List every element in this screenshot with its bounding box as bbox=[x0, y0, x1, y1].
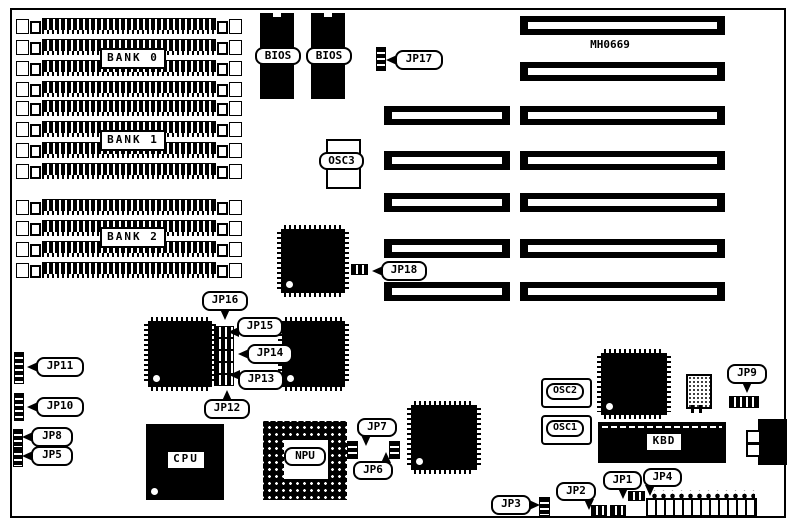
board-model-text: MH0669 bbox=[570, 38, 650, 51]
jp3-label: JP3 bbox=[493, 497, 529, 511]
jp6-label: JP6 bbox=[355, 463, 391, 477]
simm-latch bbox=[30, 63, 41, 76]
chip-pins bbox=[277, 232, 281, 290]
simm-latch bbox=[30, 166, 41, 179]
jumper-jp18 bbox=[351, 264, 368, 275]
callout-tail bbox=[361, 435, 371, 446]
simm-ticks bbox=[42, 154, 216, 158]
simm-clip bbox=[16, 143, 29, 158]
isa-slot-short bbox=[384, 282, 510, 301]
simm-clip bbox=[16, 101, 29, 116]
callout-jp11: JP11 bbox=[36, 357, 84, 377]
callout-tail bbox=[222, 390, 232, 401]
simm-ticks bbox=[42, 93, 216, 97]
motherboard-diagram: BANK 0 BANK 1 BANK 2 BIOS BIOS JP17 OSC3… bbox=[0, 0, 791, 527]
callout-tail bbox=[618, 488, 628, 499]
isa-slot-short bbox=[384, 151, 510, 170]
callout-jp14: JP14 bbox=[247, 344, 293, 364]
simm-latch bbox=[30, 103, 41, 116]
simm-latch bbox=[217, 223, 228, 236]
chip-pins bbox=[345, 324, 349, 384]
simm-latch bbox=[30, 124, 41, 137]
simm-clip bbox=[229, 200, 242, 215]
chip-pins bbox=[285, 387, 342, 391]
simm-latch bbox=[217, 63, 228, 76]
jp2-label: JP2 bbox=[558, 484, 594, 498]
simm-clip bbox=[16, 122, 29, 137]
simm-ticks bbox=[42, 112, 216, 116]
callout-tail bbox=[220, 309, 230, 320]
jumper-jp11 bbox=[14, 352, 24, 384]
simm-latch bbox=[30, 84, 41, 97]
simm-clip bbox=[16, 40, 29, 55]
pin1-dot bbox=[606, 403, 613, 410]
simm-clip bbox=[229, 221, 242, 236]
kbd-label: KBD bbox=[646, 433, 682, 451]
simm-ticks bbox=[42, 175, 216, 179]
simm-clip bbox=[229, 40, 242, 55]
callout-jp12: JP12 bbox=[204, 399, 250, 419]
callout-jp6: JP6 bbox=[353, 461, 393, 480]
chip-pins bbox=[604, 415, 664, 419]
callout-tail bbox=[27, 402, 38, 412]
simm-latch bbox=[217, 202, 228, 215]
simm-clip bbox=[16, 221, 29, 236]
jumper-jp3 bbox=[539, 497, 550, 516]
simm-clip bbox=[16, 200, 29, 215]
isa-slot-long bbox=[520, 193, 725, 212]
simm-latch bbox=[217, 124, 228, 137]
simm-latch bbox=[30, 244, 41, 257]
chip-pins bbox=[284, 225, 342, 229]
callout-jp13: JP13 bbox=[238, 370, 284, 390]
jp16-label: JP16 bbox=[204, 293, 246, 307]
jumper-jp6 bbox=[389, 441, 400, 459]
jp14-label: JP14 bbox=[249, 346, 291, 360]
jp18-label: JP18 bbox=[383, 263, 425, 277]
simm-ticks bbox=[42, 211, 216, 215]
isa-slot-short bbox=[384, 106, 510, 125]
chip-pins bbox=[345, 232, 349, 290]
bank2-label: BANK 2 bbox=[100, 227, 166, 248]
jp5-label: JP5 bbox=[33, 448, 71, 462]
callout-jp17: JP17 bbox=[395, 50, 443, 70]
simm-latch bbox=[30, 21, 41, 34]
keyboard-din-connector bbox=[758, 419, 787, 465]
chip-pins bbox=[604, 349, 664, 353]
callout-jp18: JP18 bbox=[381, 261, 427, 281]
jp7-label: JP7 bbox=[359, 420, 395, 434]
jp17-label: JP17 bbox=[397, 52, 441, 66]
chip-pins bbox=[151, 317, 209, 321]
callout-tail bbox=[584, 499, 594, 510]
simm-clip bbox=[16, 82, 29, 97]
callout-tail bbox=[372, 266, 383, 276]
jp9-label: JP9 bbox=[729, 366, 765, 380]
simm-clip bbox=[229, 122, 242, 137]
isa-slot-long bbox=[520, 16, 725, 35]
callout-tail bbox=[238, 349, 249, 359]
isa-slot-long bbox=[520, 106, 725, 125]
callout-jp10: JP10 bbox=[36, 397, 84, 417]
jp13-label: JP13 bbox=[240, 372, 282, 386]
simm-socket bbox=[16, 81, 242, 98]
callout-tail bbox=[229, 370, 240, 380]
simm-socket bbox=[16, 163, 242, 180]
simm-latch bbox=[30, 202, 41, 215]
callout-tail bbox=[381, 452, 391, 463]
simm-clip bbox=[229, 143, 242, 158]
chipset-chip-1 bbox=[281, 229, 345, 293]
callout-jp16: JP16 bbox=[202, 291, 248, 311]
chip-pins bbox=[284, 293, 342, 297]
bank1-label: BANK 1 bbox=[100, 130, 166, 151]
isa-slot-short bbox=[384, 239, 510, 258]
isa-slot-long bbox=[520, 282, 725, 301]
simm-latch bbox=[30, 42, 41, 55]
simm-latch bbox=[217, 103, 228, 116]
callout-jp2: JP2 bbox=[556, 482, 596, 501]
simm-clip bbox=[16, 61, 29, 76]
bottom-header-connector bbox=[646, 490, 757, 517]
callout-tail bbox=[742, 382, 752, 393]
pin1-dot bbox=[151, 488, 158, 495]
jp15-label: JP15 bbox=[239, 319, 281, 333]
simm-socket bbox=[16, 100, 242, 117]
chip-pins bbox=[151, 387, 209, 391]
simm-latch bbox=[30, 265, 41, 278]
simm-latch bbox=[217, 42, 228, 55]
callout-tail bbox=[22, 451, 33, 461]
chipset-chip-4 bbox=[411, 405, 477, 470]
pin1-dot bbox=[286, 281, 293, 288]
chipset-chip-5 bbox=[601, 353, 667, 415]
simm-latch bbox=[217, 244, 228, 257]
jumper-jp14 bbox=[214, 350, 234, 362]
jumper-jp4 bbox=[628, 491, 645, 501]
chip-pins bbox=[285, 317, 342, 321]
chip-pins bbox=[597, 356, 601, 412]
simm-clip bbox=[229, 242, 242, 257]
chip-pins bbox=[144, 324, 148, 384]
simm-socket bbox=[16, 262, 242, 279]
simm-latch bbox=[217, 166, 228, 179]
simm-socket bbox=[16, 199, 242, 216]
simm-clip bbox=[16, 242, 29, 257]
bios-left-label: BIOS bbox=[255, 47, 301, 65]
jp10-label: JP10 bbox=[38, 399, 82, 413]
crystal-leg bbox=[691, 405, 694, 413]
callout-jp9: JP9 bbox=[727, 364, 767, 384]
chip-pins bbox=[414, 401, 474, 405]
din-pin bbox=[746, 430, 761, 444]
isa-slot-long bbox=[520, 239, 725, 258]
callout-jp7: JP7 bbox=[357, 418, 397, 437]
simm-latch bbox=[217, 84, 228, 97]
jp12-label: JP12 bbox=[206, 401, 248, 415]
callout-jp15: JP15 bbox=[237, 317, 283, 337]
callout-tail bbox=[386, 55, 397, 65]
jp1-label: JP1 bbox=[605, 473, 640, 487]
crystal bbox=[686, 374, 712, 409]
simm-latch bbox=[30, 223, 41, 236]
chip-pins bbox=[667, 356, 671, 412]
pin1-dot bbox=[287, 375, 294, 382]
jumper-jp1 bbox=[610, 505, 626, 516]
callout-tail bbox=[645, 485, 655, 496]
chip-pins bbox=[414, 470, 474, 474]
jp4-label: JP4 bbox=[645, 470, 680, 484]
crystal-leg bbox=[699, 405, 702, 413]
jp8-label: JP8 bbox=[33, 429, 71, 443]
jumper-jp7 bbox=[347, 441, 358, 459]
isa-slot-long bbox=[520, 151, 725, 170]
jumper-jp17 bbox=[376, 47, 386, 71]
callout-jp4: JP4 bbox=[643, 468, 682, 487]
simm-latch bbox=[217, 265, 228, 278]
connector-pins bbox=[648, 490, 755, 498]
simm-socket bbox=[16, 18, 242, 35]
simm-ticks bbox=[42, 253, 216, 257]
osc1-label: OSC1 bbox=[546, 420, 584, 437]
npu-label: NPU bbox=[284, 447, 326, 466]
simm-clip bbox=[229, 101, 242, 116]
simm-clip bbox=[16, 19, 29, 34]
callout-tail bbox=[529, 500, 540, 510]
simm-clip bbox=[229, 61, 242, 76]
pin1-dot bbox=[416, 458, 423, 465]
callout-jp1: JP1 bbox=[603, 471, 642, 490]
callout-jp5: JP5 bbox=[31, 446, 73, 466]
simm-clip bbox=[16, 164, 29, 179]
simm-clip bbox=[16, 263, 29, 278]
bios-right-label: BIOS bbox=[306, 47, 352, 65]
simm-ticks bbox=[42, 274, 216, 278]
callout-jp8: JP8 bbox=[31, 427, 73, 447]
jumper-jp9 bbox=[729, 396, 759, 408]
isa-slot-short bbox=[384, 193, 510, 212]
simm-latch bbox=[217, 21, 228, 34]
chip-pins bbox=[477, 408, 481, 467]
simm-clip bbox=[229, 82, 242, 97]
callout-tail bbox=[228, 327, 239, 337]
jumper-jp15 bbox=[214, 338, 234, 350]
osc3-label: OSC3 bbox=[319, 152, 364, 170]
simm-clip bbox=[229, 263, 242, 278]
din-pin bbox=[746, 443, 761, 457]
simm-clip bbox=[229, 19, 242, 34]
isa-slot-long bbox=[520, 62, 725, 81]
osc2-label: OSC2 bbox=[546, 383, 584, 400]
cpu-label: CPU bbox=[167, 451, 205, 469]
callout-tail bbox=[27, 362, 38, 372]
callout-tail bbox=[22, 432, 33, 442]
simm-ticks bbox=[42, 72, 216, 76]
chipset-chip-2 bbox=[148, 321, 212, 387]
jp11-label: JP11 bbox=[38, 359, 82, 373]
simm-latch bbox=[30, 145, 41, 158]
simm-ticks bbox=[42, 30, 216, 34]
jumper-jp10 bbox=[14, 393, 24, 421]
bank0-label: BANK 0 bbox=[100, 48, 166, 69]
connector-cells bbox=[646, 498, 757, 517]
pin1-dot bbox=[153, 375, 160, 382]
simm-clip bbox=[229, 164, 242, 179]
chip-pins bbox=[407, 408, 411, 467]
callout-jp3: JP3 bbox=[491, 495, 531, 515]
simm-latch bbox=[217, 145, 228, 158]
